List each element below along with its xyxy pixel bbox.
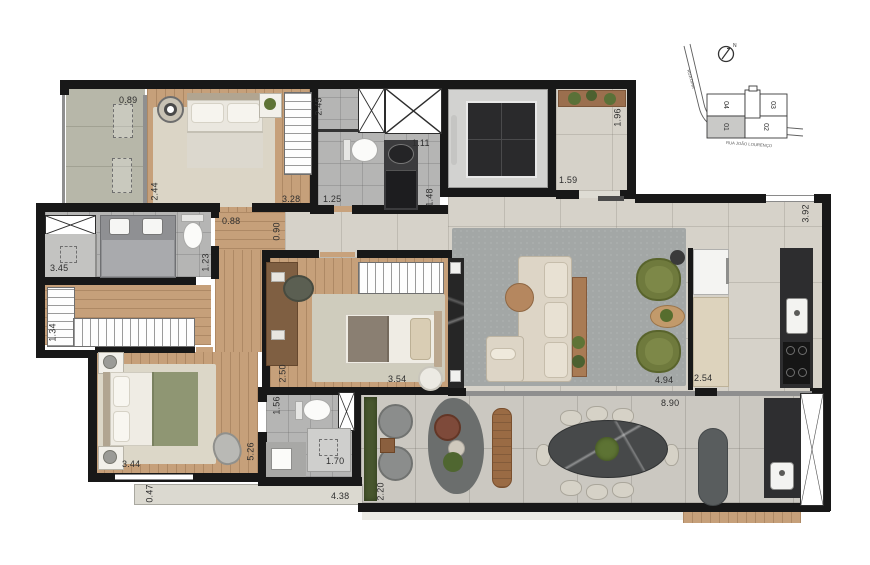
dim-kitchen-depth: 3.92 — [802, 202, 811, 226]
wall — [60, 80, 69, 95]
building-core-tab — [749, 86, 757, 91]
wall-bedroom1-bottom — [62, 203, 220, 212]
floor-plan-canvas: 0.89 2.44 3.28 1.25 2.45 1.11 1.48 1.96 … — [0, 0, 870, 565]
dim-living-width: 4.94 — [655, 376, 673, 385]
vanity1-sink — [388, 144, 414, 164]
dim-suite2-width: 3.54 — [388, 375, 406, 384]
wall — [310, 205, 334, 214]
dim-corridor-a: 0.88 — [222, 217, 240, 226]
dining-chair — [612, 482, 634, 498]
desk-chair — [283, 275, 314, 302]
terrace-bench — [492, 408, 512, 488]
dim-terrace-width: 8.90 — [661, 399, 679, 408]
toilet2-tank — [295, 401, 303, 420]
dim-bath1-width: 1.25 — [323, 195, 341, 204]
plant-icon — [572, 355, 585, 368]
burner — [786, 346, 795, 355]
compass-icon: N — [719, 43, 738, 62]
plant-icon — [443, 452, 463, 472]
dim-terrace-a: 4.38 — [331, 492, 349, 501]
suite2-bed-pillow — [410, 318, 431, 360]
shaft-box — [45, 215, 96, 235]
planter-box — [112, 158, 132, 193]
dim-varanda: 0.89 — [119, 96, 137, 105]
dining-chair — [560, 480, 582, 496]
shower-head — [60, 246, 77, 263]
bath2-shower-unit — [271, 448, 292, 470]
sofa-chaise-pillow — [490, 348, 516, 360]
unit-01-label: 01 — [722, 123, 729, 131]
master-door-threshold — [196, 347, 213, 352]
wall-bath2-bottom — [258, 477, 362, 486]
shaft-box — [338, 392, 355, 431]
desk-item — [271, 272, 285, 282]
desk-item — [271, 330, 285, 340]
dim-master-width: 3.44 — [122, 460, 140, 469]
lamp-icon — [103, 355, 117, 369]
dim-hall2: 1.56 — [273, 394, 282, 418]
unit-03-label: 03 — [769, 101, 776, 109]
wall-hall-right — [627, 80, 636, 199]
dim-bath2-width: 1.70 — [326, 457, 344, 466]
wall-suite2-top2 — [357, 250, 452, 258]
dim-bedroom1-width: 3.28 — [282, 195, 300, 204]
site-key-plan: N RUA DINA RUA JOÃO LOURENÇO 04 03 01 02 — [660, 30, 860, 170]
plant-icon — [572, 336, 585, 349]
shaft-box — [385, 88, 442, 134]
sofa-back-cushion — [544, 342, 568, 378]
folding-door-panel — [800, 393, 824, 506]
plant-icon — [604, 93, 616, 105]
toilet1-bowl — [351, 138, 378, 162]
wall-suite2-top — [262, 250, 319, 258]
wall-post — [448, 388, 466, 396]
bed1-pillow — [191, 103, 224, 123]
burner — [798, 346, 807, 355]
bath2-vanity-sink — [319, 439, 338, 456]
wall — [211, 246, 219, 279]
compass-label: N — [733, 43, 737, 49]
ceiling-fan-center — [164, 103, 177, 116]
dim-suite2-depth: 2.50 — [279, 362, 288, 386]
bedroom1-window — [143, 95, 147, 203]
toilet2-bowl — [303, 399, 331, 421]
vanity-master-sink — [142, 218, 163, 235]
gourmet-faucet — [779, 470, 785, 476]
kitchen-faucet — [794, 310, 800, 316]
wall-terrace-bottom — [358, 503, 830, 512]
building-core — [745, 90, 760, 118]
unit-04-label: 04 — [722, 101, 729, 109]
wall — [556, 190, 579, 199]
bed1-blanket — [187, 131, 263, 168]
suite2-door-threshold — [320, 252, 355, 257]
toilet-master-bowl — [183, 222, 203, 249]
master-bed-headboard — [103, 372, 110, 446]
unit-02-label: 02 — [762, 123, 769, 131]
plant-icon — [568, 92, 581, 105]
fridge-handle — [726, 258, 729, 284]
ottoman-terracotta — [434, 414, 461, 441]
planter-box — [113, 104, 133, 138]
wall — [36, 350, 94, 358]
dim-kitchen-width: 2.54 — [694, 374, 712, 383]
wall-master-left — [88, 350, 97, 482]
master-window — [115, 474, 193, 480]
wall-living-top — [635, 194, 766, 203]
tv-panel — [448, 258, 464, 388]
dim-bath1-a: 1.11 — [412, 139, 430, 148]
side-stool-dark — [670, 250, 685, 265]
lounge-side-table — [380, 438, 395, 453]
dim-master-depth: 5.26 — [247, 440, 256, 464]
dim-mbath-a: 1.23 — [202, 251, 211, 275]
dim-terrace-b: 2.20 — [377, 480, 386, 504]
wardrobe2 — [358, 262, 444, 294]
dim-bath1-b: 1.48 — [426, 186, 435, 210]
shaft-box — [358, 88, 385, 133]
toilet-master-tank — [181, 214, 204, 222]
wall — [258, 387, 267, 402]
balcony-bottom-floor — [134, 484, 363, 505]
wall-elevator-bottom — [440, 188, 556, 197]
dim-balcony2: 0.47 — [146, 482, 155, 506]
armchair-green-cushion — [645, 266, 673, 293]
dim-hall-depth: 1.59 — [559, 176, 577, 185]
sofa-back-cushion — [544, 302, 568, 338]
master-bed-pillow — [113, 411, 130, 442]
dim-bedroom1-depth: 2.44 — [151, 180, 160, 204]
elevator-cabin — [466, 101, 537, 178]
balcony-railing — [62, 95, 65, 203]
side-table-round — [505, 283, 534, 312]
sofa-back-cushion — [544, 262, 568, 298]
centerpiece-plant — [595, 437, 619, 461]
wall — [211, 205, 219, 218]
wall-elevator-right — [548, 85, 556, 195]
master-bed-blanket — [152, 372, 198, 446]
lounge-chair — [378, 404, 413, 439]
suite2-bed-headboard — [434, 311, 442, 367]
bath1-threshold — [334, 206, 352, 212]
toilet1-tank — [343, 139, 351, 161]
burner — [786, 368, 795, 377]
gourmet-sink — [770, 462, 794, 490]
burner — [798, 368, 807, 377]
balcony-top-floor — [66, 89, 145, 207]
fridge — [693, 249, 729, 295]
dim-mbath-width: 3.45 — [50, 264, 68, 273]
suite2-pouf — [418, 366, 443, 391]
elevator-door — [451, 115, 457, 165]
hallway-wood-floor — [215, 250, 262, 352]
dim-bath1-depth: 2.45 — [315, 95, 324, 119]
street-name-bottom: RUA JOÃO LOURENÇO — [726, 140, 773, 148]
dining-chair — [586, 484, 608, 500]
closet-shelf-horizontal — [73, 318, 195, 347]
terrace-island — [698, 428, 728, 506]
vanity-master-cabinet — [102, 240, 174, 276]
sliding-door-rail — [717, 391, 812, 396]
suite2-bed-blanket — [348, 316, 389, 362]
dim-closet-depth: 1.34 — [49, 321, 58, 345]
plant-icon — [264, 98, 276, 110]
armchair-green-cushion — [645, 338, 673, 365]
lamp-icon — [103, 450, 117, 464]
street-name-diagonal: RUA DINA — [686, 69, 696, 90]
vanity1-cabinet — [386, 170, 416, 208]
entry-door-leaf — [598, 196, 624, 201]
wall-post — [695, 388, 717, 396]
plant-icon — [660, 309, 673, 322]
kitchen-sink — [786, 298, 808, 334]
dim-corridor-b: 0.90 — [273, 220, 282, 244]
dim-hall-width: 1.96 — [614, 106, 623, 130]
master-bed-pillow — [113, 376, 130, 407]
wall — [252, 203, 318, 212]
sliding-door-rail — [466, 391, 695, 396]
bed1-pillow — [227, 103, 260, 123]
plant-icon — [586, 90, 597, 101]
media-item — [450, 262, 461, 274]
wardrobe1 — [284, 92, 312, 175]
media-item — [450, 370, 461, 382]
vanity-master-sink — [109, 218, 130, 235]
wall-bath-closet — [36, 277, 196, 285]
